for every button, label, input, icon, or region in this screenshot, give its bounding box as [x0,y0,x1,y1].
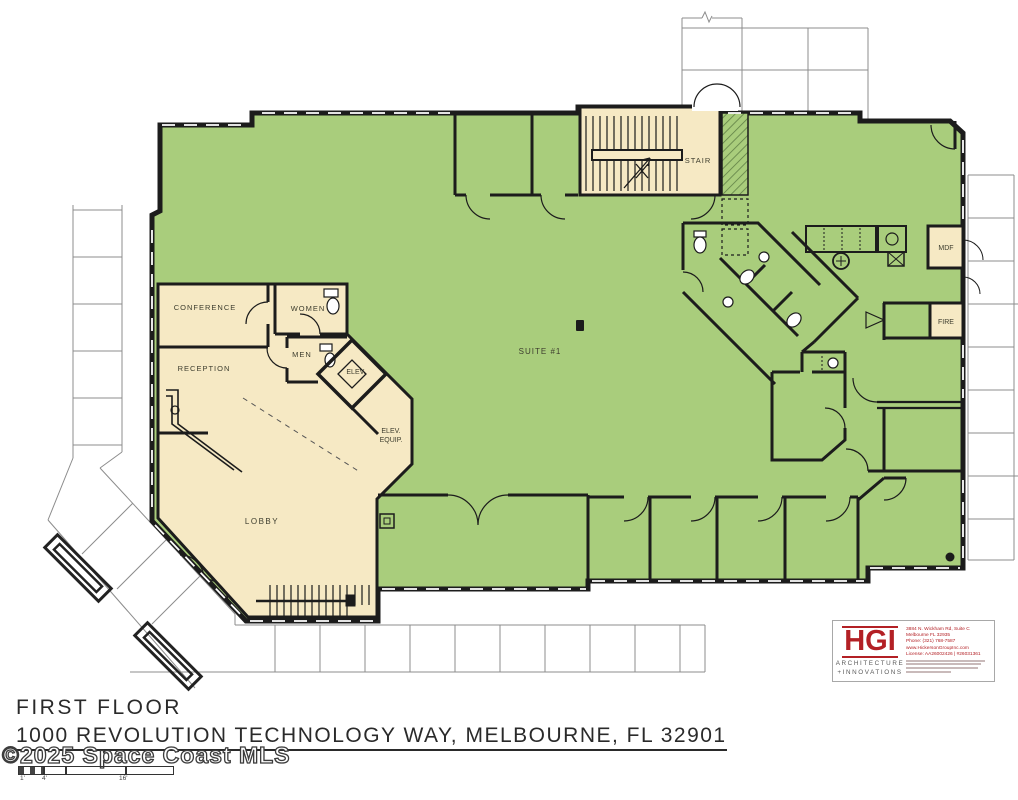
label-elevator: ELEV. [346,369,365,376]
logo-tagline-innovations: +INNOVATIONS [837,669,902,676]
label-conference: CONFERENCE [174,303,237,312]
scale-bar-rule [18,766,174,775]
logo-fine-print-line [906,660,985,662]
logo-license-line: License: AA26002426 | #26031361 [906,652,988,658]
label-stair: STAIR [685,156,712,165]
scale-tick-16ft: 16' [119,775,127,782]
label-men: MEN [292,350,312,359]
label-reception: RECEPTION [178,364,231,373]
scale-tick-4ft: 4' [42,775,47,782]
logo-fine-print-line [906,667,978,669]
page-title: FIRST FLOOR [16,696,727,720]
architect-logo-box: HGI ARCHITECTURE +INNOVATIONS 3884 N. Wi… [832,620,995,682]
site-island-1 [45,535,111,601]
logo-tagline-architecture: ARCHITECTURE [836,660,905,667]
label-mdf: MDF [938,245,953,252]
label-women: WOMEN [291,304,326,313]
label-fire: FIRE [938,319,954,326]
floor-plan-page: CONFERENCE RECEPTION WOMEN MEN ELEV. ELE… [0,0,1018,800]
logo-fine-print-line [906,671,951,673]
logo-contact-block: 3884 N. Wickham Rd, Suite C Melbourne FL… [906,626,988,676]
label-lobby: LOBBY [245,517,279,526]
label-suite: SUITE #1 [519,347,562,356]
site-island-2 [135,623,201,689]
mls-watermark: ©2025 Space Coast MLS [2,742,291,769]
hgi-logo: HGI [842,626,898,658]
scale-tick-1ft: 1' [20,775,25,782]
label-elev-equip-1: ELEV. [381,428,400,435]
logo-fine-print-line [906,663,981,665]
scale-bar: 1' 4' 16' [18,766,174,784]
label-elev-equip-2: EQUIP. [380,437,403,444]
